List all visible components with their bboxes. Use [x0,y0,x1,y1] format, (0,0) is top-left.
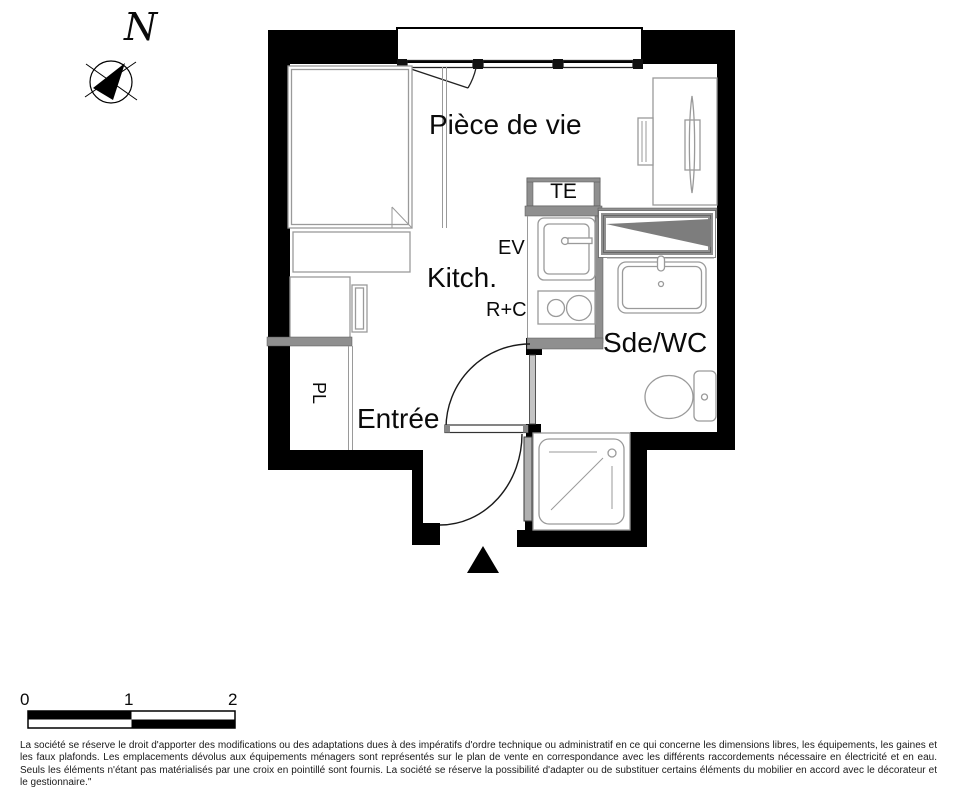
scale-bar [28,711,235,728]
floor-plan-page: N Pièce de vie Kitch. Entrée Sde/WC PL T… [0,0,953,799]
room-label-entry: Entrée [357,405,440,433]
window [397,28,643,88]
kitchen-sink [538,218,595,280]
entrance-door [440,425,528,525]
equipment-label-rc: R+C [486,300,527,320]
equipment-label-te: TE [527,181,600,202]
room-label-kitchen: Kitch. [427,264,497,292]
cooktop [538,291,595,324]
side-table [290,277,367,338]
duct-shelf [599,211,716,258]
north-label: N [124,8,157,46]
scale-tick-1: 1 [124,691,133,708]
bed [288,66,412,272]
kitchen-counter [527,216,603,349]
scale-tick-0: 0 [20,691,29,708]
room-label-bathroom: Sde/WC [603,329,707,357]
shower [524,433,630,530]
legal-notice: La société se réserve le droit d'apporte… [20,740,937,790]
living-partition-line [443,67,447,228]
room-label-living: Pièce de vie [429,111,582,139]
equipment-label-ev: EV [498,238,525,258]
desk [638,78,717,205]
room-label-closet: PL [310,380,328,406]
shower-glass [524,437,532,521]
scale-tick-2: 2 [228,691,237,708]
entrance-arrow-icon [467,546,499,573]
washbasin [607,256,714,313]
compass-icon [85,61,137,103]
bathroom [598,208,717,421]
toilet [645,371,716,421]
bathroom-door [446,344,536,428]
